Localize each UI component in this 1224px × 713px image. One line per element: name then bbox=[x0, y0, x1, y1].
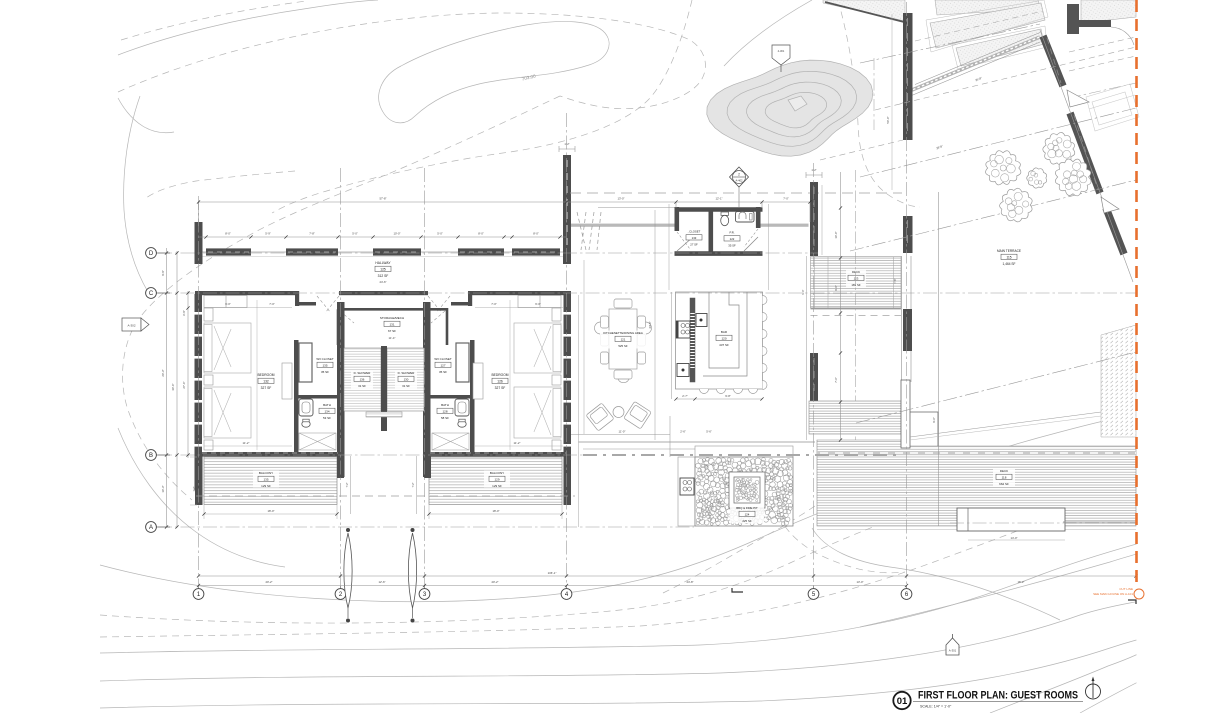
svg-text:KITCHENETTE/DINING AREA: KITCHENETTE/DINING AREA bbox=[603, 331, 643, 335]
svg-text:7'-0": 7'-0" bbox=[783, 197, 789, 201]
svg-text:30'-6": 30'-6" bbox=[171, 383, 175, 390]
svg-text:58 SF: 58 SF bbox=[441, 416, 449, 420]
svg-text:136: 136 bbox=[360, 378, 365, 382]
svg-text:225 SF: 225 SF bbox=[742, 519, 752, 523]
svg-text:57'-8": 57'-8" bbox=[379, 197, 386, 201]
svg-text:W/I CLOSET: W/I CLOSET bbox=[316, 357, 334, 361]
svg-text:6'-0": 6'-0" bbox=[225, 302, 231, 306]
svg-text:120: 120 bbox=[721, 337, 726, 341]
svg-text:8'-0": 8'-0" bbox=[533, 232, 539, 236]
svg-text:20'-2": 20'-2" bbox=[491, 580, 498, 584]
svg-text:135: 135 bbox=[322, 364, 327, 368]
svg-text:BBQ & FIRE PIT: BBQ & FIRE PIT bbox=[736, 506, 758, 510]
svg-text:53 SF: 53 SF bbox=[323, 416, 331, 420]
svg-text:129 SF: 129 SF bbox=[492, 484, 502, 488]
svg-text:131: 131 bbox=[389, 323, 394, 327]
svg-text:10'-3": 10'-3" bbox=[161, 485, 165, 492]
svg-text:437 SF: 437 SF bbox=[719, 343, 729, 347]
svg-text:525 SF: 525 SF bbox=[618, 344, 628, 348]
svg-text:SCALE: 1/4" = 1'-0": SCALE: 1/4" = 1'-0" bbox=[920, 705, 952, 709]
svg-text:2: 2 bbox=[738, 173, 740, 177]
svg-text:31 SF: 31 SF bbox=[402, 384, 410, 388]
svg-text:4-301: 4-301 bbox=[778, 49, 785, 53]
svg-text:106'-1": 106'-1" bbox=[548, 571, 557, 575]
svg-text:7'-6": 7'-6" bbox=[893, 278, 897, 283]
svg-text:7'-2": 7'-2" bbox=[346, 482, 349, 487]
svg-text:10'-0": 10'-0" bbox=[834, 231, 838, 238]
svg-text:BALCONY: BALCONY bbox=[490, 471, 504, 475]
svg-text:13'-0": 13'-0" bbox=[856, 580, 863, 584]
svg-text:C: C bbox=[149, 291, 154, 297]
svg-text:DECK: DECK bbox=[852, 270, 860, 274]
svg-text:1,464 SF: 1,464 SF bbox=[1003, 262, 1016, 266]
svg-text:2'-6": 2'-6" bbox=[680, 430, 686, 434]
svg-text:11'-2": 11'-2" bbox=[243, 441, 250, 445]
svg-text:A-302: A-302 bbox=[127, 324, 135, 328]
svg-text:11'-2": 11'-2" bbox=[514, 441, 521, 445]
svg-text:132: 132 bbox=[263, 380, 269, 384]
svg-text:130: 130 bbox=[404, 378, 409, 382]
svg-text:134: 134 bbox=[324, 410, 329, 414]
svg-text:BAR: BAR bbox=[721, 330, 728, 334]
svg-text:27'-6": 27'-6" bbox=[182, 381, 186, 388]
svg-text:327 SF: 327 SF bbox=[495, 386, 506, 390]
svg-text:115: 115 bbox=[1006, 256, 1011, 260]
svg-text:122: 122 bbox=[730, 237, 735, 241]
svg-text:6'-9": 6'-9" bbox=[182, 310, 186, 316]
svg-text:133: 133 bbox=[692, 236, 697, 240]
svg-text:9'-6": 9'-6" bbox=[932, 417, 936, 423]
svg-text:121: 121 bbox=[621, 338, 626, 342]
svg-text:13'-0": 13'-0" bbox=[617, 197, 624, 201]
svg-text:24'-8": 24'-8" bbox=[686, 580, 693, 584]
svg-text:9'-9": 9'-9" bbox=[161, 270, 165, 276]
svg-text:327 SF: 327 SF bbox=[261, 386, 272, 390]
svg-text:2'-7": 2'-7" bbox=[682, 394, 688, 398]
svg-text:128: 128 bbox=[442, 410, 447, 414]
svg-text:10'-0": 10'-0" bbox=[393, 232, 400, 236]
svg-text:129 SF: 129 SF bbox=[261, 484, 271, 488]
svg-text:12'-1": 12'-1" bbox=[715, 197, 722, 201]
svg-text:5'-0": 5'-0" bbox=[437, 232, 443, 236]
svg-text:31 SF: 31 SF bbox=[358, 384, 366, 388]
svg-text:312 SF: 312 SF bbox=[378, 274, 389, 278]
svg-text:9'-0": 9'-0" bbox=[834, 285, 838, 291]
svg-text:24'-6": 24'-6" bbox=[379, 280, 386, 284]
svg-text:MAIN TERRACE: MAIN TERRACE bbox=[997, 249, 1021, 253]
svg-text:14'-0": 14'-0" bbox=[1010, 536, 1017, 540]
svg-text:D. SHOWER: D. SHOWER bbox=[354, 371, 371, 375]
svg-text:FIRST FLOOR PLAN: GUEST ROOMS: FIRST FLOOR PLAN: GUEST ROOMS bbox=[918, 690, 1078, 702]
svg-text:11'-0": 11'-0" bbox=[619, 430, 626, 434]
svg-text:W/I CLOSET: W/I CLOSET bbox=[434, 357, 452, 361]
svg-text:127: 127 bbox=[440, 364, 445, 368]
svg-text:BEDROOM: BEDROOM bbox=[257, 373, 274, 377]
svg-text:129: 129 bbox=[494, 478, 499, 482]
svg-text:27 SF: 27 SF bbox=[690, 243, 698, 247]
svg-text:7'-8": 7'-8" bbox=[309, 232, 315, 236]
svg-text:16'-2": 16'-2" bbox=[1017, 580, 1024, 584]
svg-text:BEDROOM: BEDROOM bbox=[491, 373, 508, 377]
svg-text:18'-0": 18'-0" bbox=[267, 509, 274, 513]
svg-text:44'-6": 44'-6" bbox=[648, 321, 652, 328]
svg-text:123: 123 bbox=[854, 277, 859, 281]
svg-text:1'-2": 1'-2" bbox=[193, 486, 196, 491]
svg-text:A-402: A-402 bbox=[736, 179, 743, 183]
svg-text:11'-4": 11'-4" bbox=[389, 336, 396, 340]
svg-text:35 SF: 35 SF bbox=[321, 370, 329, 374]
svg-text:124: 124 bbox=[745, 513, 750, 517]
svg-text:BALCONY: BALCONY bbox=[259, 471, 273, 475]
svg-text:BATH: BATH bbox=[441, 403, 449, 407]
svg-text:7'-0": 7'-0" bbox=[491, 302, 497, 306]
svg-text:125: 125 bbox=[380, 268, 386, 272]
svg-text:DECK: DECK bbox=[1000, 469, 1008, 473]
svg-text:..CLOSET: ..CLOSET bbox=[688, 230, 701, 234]
svg-text:67 SF: 67 SF bbox=[388, 329, 396, 333]
svg-text:STORAGE/MECH: STORAGE/MECH bbox=[380, 316, 404, 320]
svg-text:20'-3": 20'-3" bbox=[161, 369, 165, 376]
svg-text:D: D bbox=[149, 251, 154, 257]
svg-text:8'-0": 8'-0" bbox=[478, 232, 484, 236]
svg-text:A: A bbox=[149, 525, 153, 531]
svg-text:169 SF: 169 SF bbox=[851, 283, 861, 287]
svg-text:1'-2": 1'-2" bbox=[811, 168, 816, 172]
svg-text:A-301: A-301 bbox=[949, 649, 957, 653]
svg-text:135: 135 bbox=[263, 478, 268, 482]
svg-text:9'-0": 9'-0" bbox=[801, 289, 805, 294]
svg-text:7'-0": 7'-0" bbox=[269, 302, 275, 306]
svg-text:8'-0": 8'-0" bbox=[225, 232, 231, 236]
svg-text:CUT LINE: CUT LINE bbox=[1119, 587, 1133, 591]
svg-text:118: 118 bbox=[1002, 476, 1007, 480]
svg-text:SEE MAIN HOUSE ON A-101: SEE MAIN HOUSE ON A-101 bbox=[1093, 592, 1133, 596]
svg-text:7'-2": 7'-2" bbox=[412, 482, 415, 487]
svg-text:5'-6": 5'-6" bbox=[706, 430, 712, 434]
svg-text:HALLWAY: HALLWAY bbox=[375, 261, 391, 265]
svg-text:662 SF: 662 SF bbox=[999, 482, 1009, 486]
svg-text:P.R.: P.R. bbox=[729, 231, 734, 235]
svg-text:1'-2": 1'-2" bbox=[564, 142, 569, 146]
svg-text:01: 01 bbox=[897, 696, 908, 707]
svg-text:9'-8": 9'-8" bbox=[725, 394, 731, 398]
svg-text:D. SHOWER: D. SHOWER bbox=[398, 371, 415, 375]
svg-text:35 SF: 35 SF bbox=[728, 244, 736, 248]
svg-text:12'-6": 12'-6" bbox=[378, 580, 385, 584]
svg-text:35 SF: 35 SF bbox=[439, 370, 447, 374]
svg-text:50'-0": 50'-0" bbox=[886, 116, 890, 123]
svg-text:B: B bbox=[149, 453, 153, 459]
svg-text:5'-0": 5'-0" bbox=[352, 232, 358, 236]
svg-text:18'-0": 18'-0" bbox=[492, 509, 499, 513]
svg-text:126: 126 bbox=[497, 380, 503, 384]
svg-text:BATH: BATH bbox=[323, 403, 331, 407]
svg-text:6'-0": 6'-0" bbox=[535, 302, 541, 306]
svg-text:7'-6": 7'-6" bbox=[834, 377, 838, 383]
svg-text:20'-2": 20'-2" bbox=[265, 580, 272, 584]
svg-text:5'-9": 5'-9" bbox=[265, 232, 271, 236]
